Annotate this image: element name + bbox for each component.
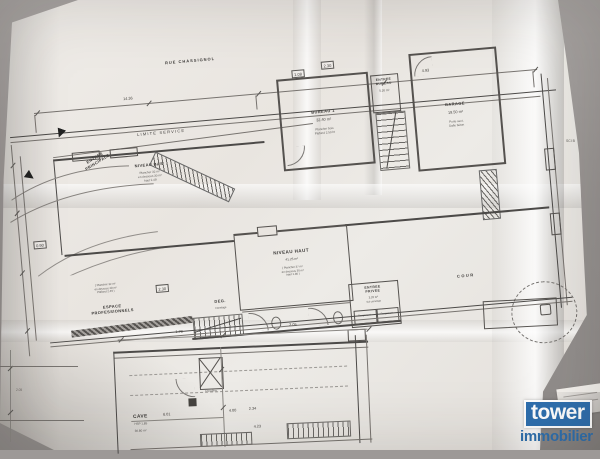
photo-of-architectural-plan: { "scene": { "background_color": "#9d999… bbox=[0, 0, 600, 450]
corner-reference-text: SCI B bbox=[566, 139, 575, 143]
room-label-cour: COUR bbox=[446, 272, 486, 280]
wall-notch bbox=[257, 225, 278, 237]
dim-label: 2.34 bbox=[249, 407, 257, 411]
room-area-cave: 36.80 m² bbox=[135, 429, 161, 434]
dashed-joist-line bbox=[129, 366, 347, 377]
boxed-dim: 1.08 bbox=[291, 69, 304, 78]
boxed-dim: 2.30 bbox=[321, 61, 334, 70]
witness-line bbox=[34, 115, 37, 133]
boxed-dim: 2.30 bbox=[155, 284, 168, 293]
boiler-x-cross-icon bbox=[199, 357, 222, 388]
left-sheet-line bbox=[0, 366, 78, 367]
dim-label: 1.78 bbox=[175, 330, 183, 334]
cave-left-wall bbox=[113, 352, 118, 454]
staircase bbox=[375, 111, 410, 171]
cave-right-wall bbox=[355, 335, 361, 443]
dim-label: 14.36 bbox=[123, 96, 133, 101]
room-note-espace-pro: ( Plancher 32 m² en dessous 28 m² Plafon… bbox=[81, 281, 130, 296]
left-sheet-dim-line bbox=[10, 350, 11, 442]
dim-label: 6.01 bbox=[163, 412, 171, 416]
dim-label: 2.05 bbox=[289, 323, 297, 327]
boxed-dim: 0.90 bbox=[33, 240, 46, 249]
left-sheet-line bbox=[0, 420, 84, 421]
street-name-label: RUE CHASSIGNOL bbox=[135, 54, 245, 68]
cave-top-wall-2 bbox=[114, 347, 369, 359]
logo-box: tower bbox=[524, 400, 592, 428]
dim-tick bbox=[366, 326, 371, 332]
cave-corner-block bbox=[348, 329, 367, 342]
dashed-joist-line bbox=[130, 386, 348, 397]
room-label-espace-pro: ESPACE PROFESSIONNELS bbox=[73, 301, 152, 317]
dim-tick bbox=[533, 67, 538, 73]
masonry-post bbox=[188, 398, 196, 406]
dim-label: 4.00 bbox=[229, 408, 237, 412]
property-right-wall bbox=[541, 74, 562, 308]
tower-immobilier-logo: tower immobilier bbox=[524, 400, 600, 444]
witness-line bbox=[532, 71, 534, 87]
door-arc-icon bbox=[175, 378, 195, 398]
stair-hatch bbox=[287, 420, 352, 439]
room-label-deg: DEG. bbox=[207, 298, 233, 305]
pilaster bbox=[550, 213, 562, 236]
dim-label: 4.23 bbox=[254, 424, 262, 428]
left-sheet-note: 2.05 bbox=[16, 388, 22, 392]
room-note-deg: Carrelage bbox=[206, 305, 236, 311]
brand-tagline: immobilier bbox=[520, 429, 600, 444]
pilaster bbox=[544, 148, 556, 171]
cave-right-wall-2 bbox=[366, 335, 372, 443]
corridor-top-wall-right bbox=[345, 206, 549, 226]
witness-line bbox=[255, 96, 257, 110]
room-hsp-cave: HSP 1,85 bbox=[134, 422, 160, 427]
brand-name: tower bbox=[531, 401, 585, 424]
